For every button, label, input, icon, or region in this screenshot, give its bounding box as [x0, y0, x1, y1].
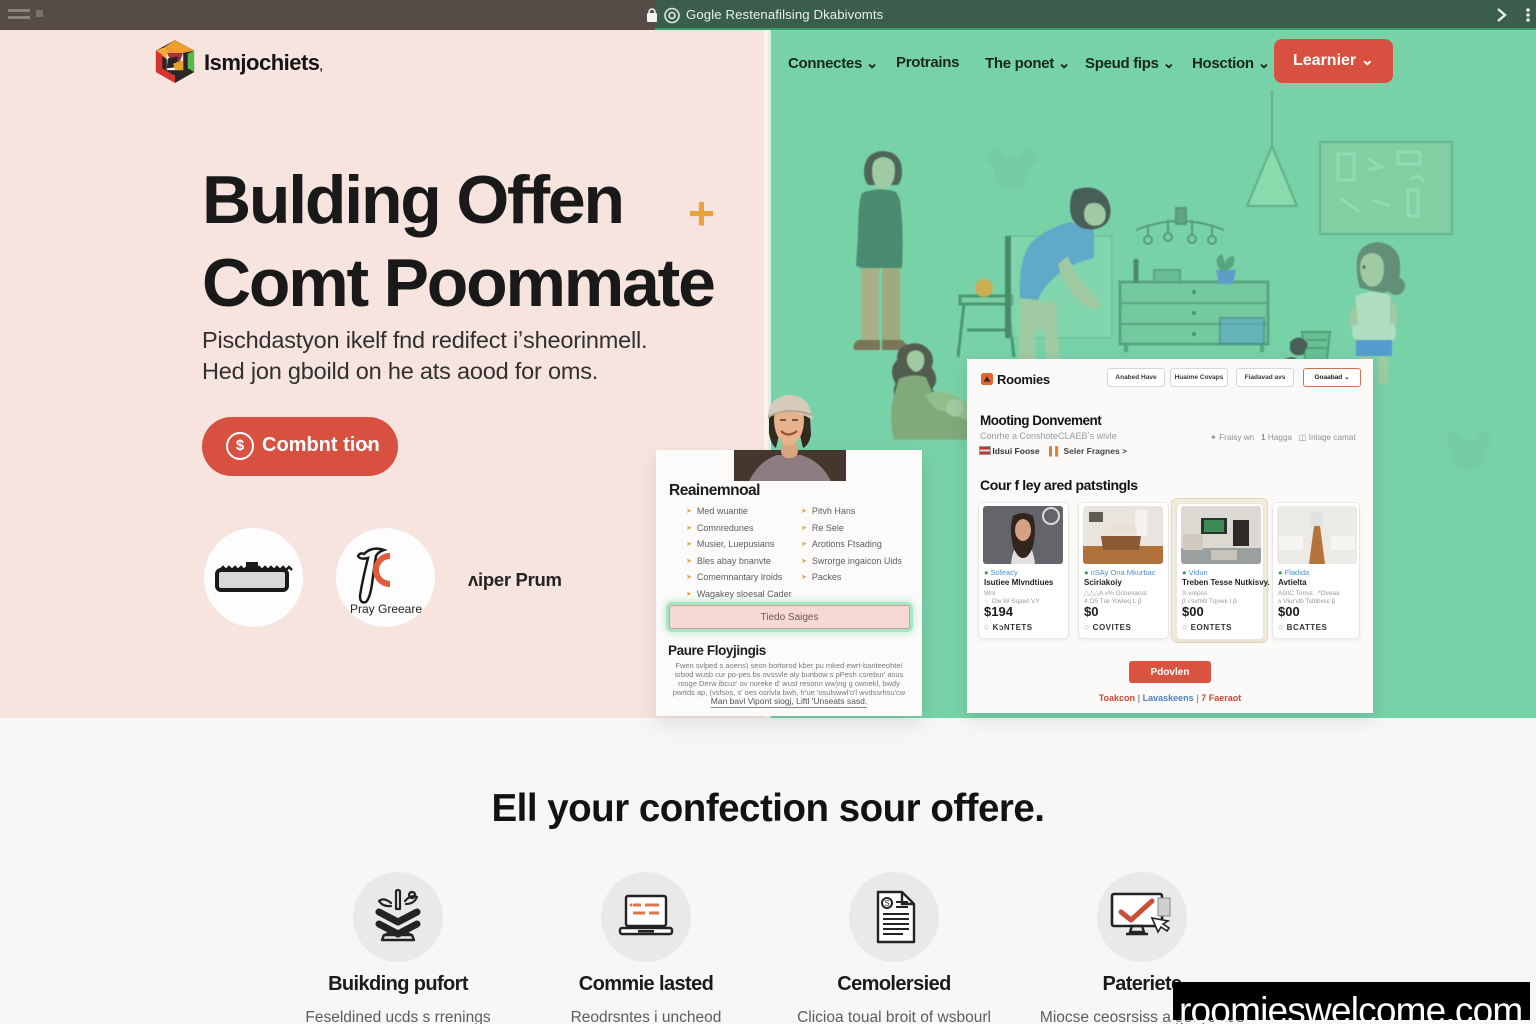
svg-text:Pray Greeare: Pray Greeare [350, 602, 422, 616]
svg-text:S: S [884, 899, 889, 908]
